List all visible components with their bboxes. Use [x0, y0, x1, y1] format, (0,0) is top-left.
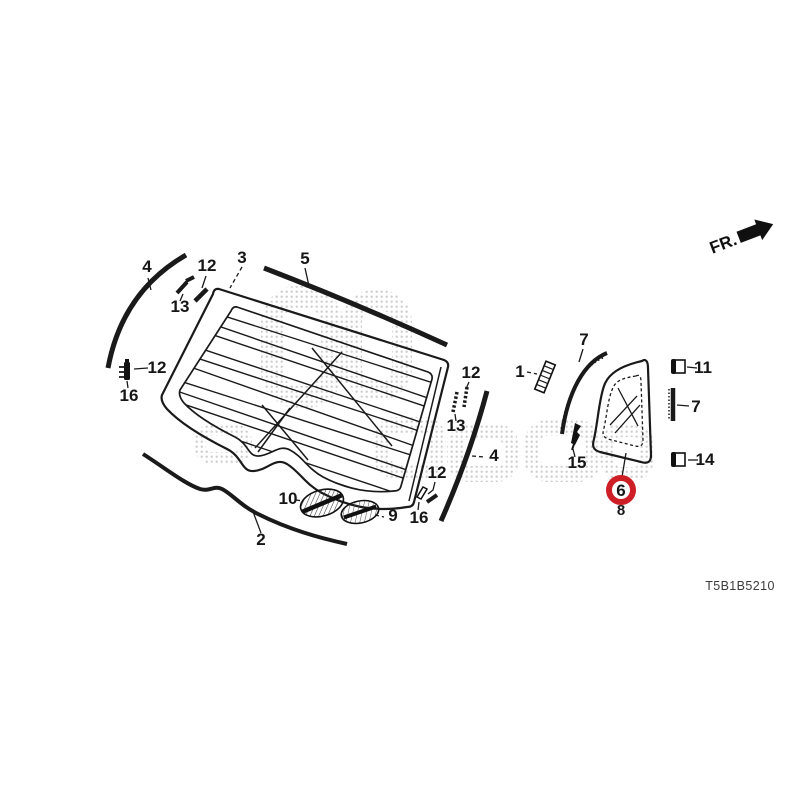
vertical-seal-strip-right: [669, 388, 673, 421]
callout-8[interactable]: 8: [617, 502, 625, 519]
callout-16-bottom[interactable]: 16: [410, 508, 429, 527]
callout-16-left[interactable]: 16: [120, 386, 139, 405]
clip-13-right: [453, 392, 457, 412]
callout-12-right[interactable]: 12: [462, 363, 481, 382]
parts-diagram-canvas: 4 12 13 3 5 12 16 12 13 4 12 16 10 9 2 1…: [0, 0, 800, 800]
fr-direction-indicator: FR.: [706, 214, 777, 259]
callout-6-selected[interactable]: 6: [616, 481, 625, 500]
callout-15[interactable]: 15: [568, 453, 587, 472]
callout-12-topleft[interactable]: 12: [198, 256, 217, 275]
watermark-halftone-logo: [200, 297, 646, 474]
callout-5[interactable]: 5: [300, 249, 309, 268]
clip-13-topleft: [177, 277, 194, 293]
clip-14: [671, 452, 685, 467]
callout-3[interactable]: 3: [237, 248, 246, 267]
callout-4-right[interactable]: 4: [489, 446, 499, 465]
selected-callout-highlight[interactable]: 6: [609, 478, 633, 502]
callout-1[interactable]: 1: [515, 362, 524, 381]
callout-12-bottom[interactable]: 12: [428, 463, 447, 482]
parts-diagram-page: 4 12 13 3 5 12 16 12 13 4 12 16 10 9 2 1…: [0, 0, 800, 800]
callout-14[interactable]: 14: [696, 450, 715, 469]
callout-13-topleft[interactable]: 13: [171, 297, 190, 316]
callout-11[interactable]: 11: [694, 358, 712, 377]
fr-arrow-icon: [735, 214, 777, 248]
diagram-code: T5B1B5210: [705, 579, 775, 593]
callout-7-top[interactable]: 7: [579, 330, 588, 349]
tape-strip-1: [535, 361, 556, 393]
callout-13-right[interactable]: 13: [447, 416, 466, 435]
clip-12-topleft: [195, 289, 207, 301]
callout-9[interactable]: 9: [388, 506, 397, 525]
callout-10[interactable]: 10: [279, 489, 298, 508]
clip-11: [671, 359, 685, 374]
clip-12-right: [464, 387, 467, 407]
emblem-10: [297, 484, 346, 521]
callout-2[interactable]: 2: [256, 530, 265, 549]
fastener-16-left: [119, 359, 130, 380]
callout-12-left[interactable]: 12: [148, 358, 167, 377]
callout-4-left[interactable]: 4: [142, 257, 152, 276]
clip-12-bottom: [417, 487, 437, 502]
callout-7-right[interactable]: 7: [691, 397, 700, 416]
fr-label: FR.: [707, 230, 739, 258]
